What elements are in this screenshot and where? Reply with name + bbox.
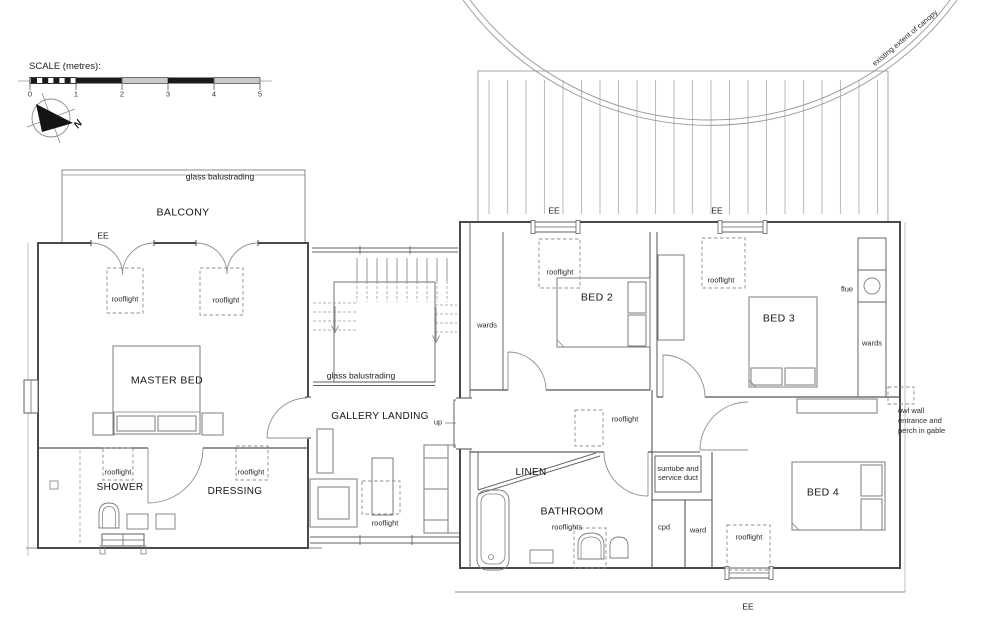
room-label-dressing: DRESSING — [208, 486, 263, 499]
scale-bar — [18, 78, 272, 91]
room-label-gallery-landing: GALLERY LANDING — [331, 411, 429, 424]
floor-plan-linework — [0, 0, 1000, 638]
elevation-marker-bed4: EE — [742, 602, 753, 613]
annotation-rooflight-master-right: rooflight — [213, 295, 240, 304]
room-label-bathroom: BATHROOM — [540, 505, 603, 518]
elevation-marker-bed3: EE — [711, 206, 722, 217]
room-label-balcony: BALCONY — [157, 206, 210, 219]
annotation-rooflight-bed2: rooflight — [547, 267, 574, 276]
elevation-marker-balcony: EE — [97, 231, 108, 242]
annotation-glass-balustrading-stairs: glass balustrading — [327, 371, 396, 382]
scale-tick-4: 4 — [212, 89, 216, 98]
room-label-bed3: BED 3 — [763, 312, 795, 325]
room-label-linen: LINEN — [516, 467, 547, 480]
annotation-ward: ward — [690, 525, 706, 534]
annotation-rooflight-dressing: rooflight — [238, 467, 265, 476]
annotation-rooflight-landing: rooflight — [372, 518, 399, 527]
room-label-bed2: BED 2 — [581, 291, 613, 304]
annotation-wards-bed2: wards — [477, 320, 497, 329]
annotation-rooflight-bed4: rooflight — [736, 532, 763, 541]
stairs — [312, 246, 458, 386]
annotation-cpd: cpd — [658, 522, 670, 531]
room-label-bed4: BED 4 — [807, 486, 839, 499]
scale-tick-0: 0 — [28, 89, 32, 98]
room-label-master-bed: MASTER BED — [131, 374, 203, 387]
annotation-flue: flue — [841, 284, 853, 293]
elevation-marker-bed2: EE — [548, 206, 559, 217]
north-arrow — [27, 93, 75, 143]
floor-plan: SCALE (metres): 0 1 2 3 4 5 N existing e… — [0, 0, 1000, 638]
annotation-up: up — [434, 417, 442, 426]
annotation-rooflight-bed3: rooflight — [708, 275, 735, 284]
scale-tick-1: 1 — [74, 89, 78, 98]
annotation-suntube-service-duct: suntube and service duct — [657, 464, 698, 482]
canopy-roof — [463, 0, 957, 222]
scale-label: SCALE (metres): — [29, 61, 101, 73]
annotation-rooflight-corridor: rooflight — [612, 414, 639, 423]
annotation-rooflight-master-left: rooflight — [112, 294, 139, 303]
annotation-owl-wall: owl wall entrance and perch in gable — [898, 406, 945, 436]
annotation-wards-bed3: wards — [862, 338, 882, 347]
room-label-shower: SHOWER — [97, 482, 144, 495]
scale-tick-2: 2 — [120, 89, 124, 98]
scale-tick-3: 3 — [166, 89, 170, 98]
annotation-glass-balustrading-balcony: glass balustrading — [186, 172, 255, 183]
annotation-rooflight-shower: rooflight — [105, 467, 132, 476]
scale-tick-5: 5 — [258, 89, 262, 98]
annotation-rooflights-bathroom: rooflights — [552, 522, 582, 531]
